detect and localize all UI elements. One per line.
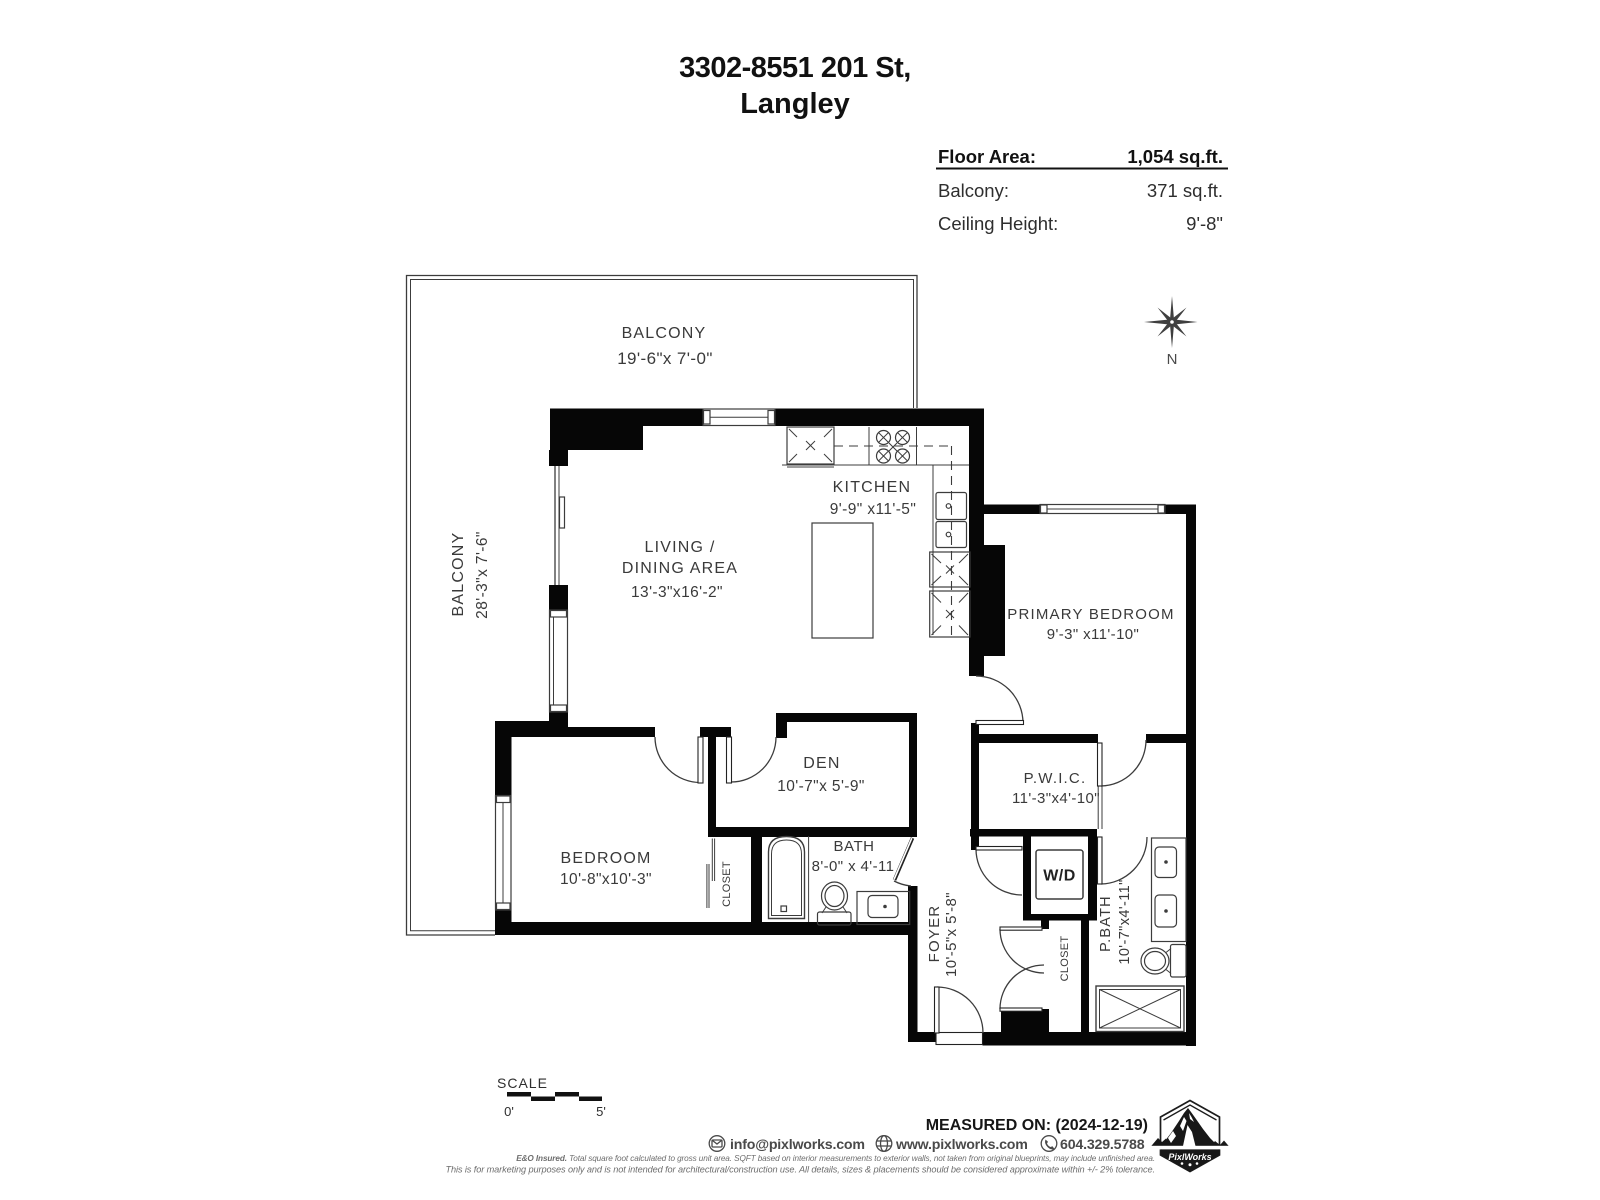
svg-text:CLOSET: CLOSET — [1059, 936, 1071, 982]
svg-text:BATH: BATH — [834, 838, 875, 855]
svg-text:FOYER: FOYER — [926, 905, 943, 963]
svg-text:10'-8"x10'-3": 10'-8"x10'-3" — [560, 871, 652, 888]
svg-text:10'-7"x 5'-9": 10'-7"x 5'-9" — [777, 778, 865, 795]
svg-text:N: N — [1167, 351, 1178, 368]
svg-text:11'-3"x4'-10": 11'-3"x4'-10" — [1012, 790, 1100, 807]
svg-text:Floor Area:: Floor Area: — [938, 146, 1036, 167]
svg-text:Langley: Langley — [740, 88, 850, 120]
svg-text:www.pixlworks.com: www.pixlworks.com — [895, 1137, 1028, 1153]
svg-text:13'-3"x16'-2": 13'-3"x16'-2" — [631, 584, 723, 601]
svg-text:This is for marketing purposes: This is for marketing purposes only and … — [445, 1165, 1155, 1175]
svg-text:Ceiling Height:: Ceiling Height: — [938, 213, 1058, 234]
svg-text:LIVING /: LIVING / — [645, 539, 716, 556]
svg-text:9'-9" x11'-5": 9'-9" x11'-5" — [830, 501, 916, 518]
svg-text:9'-8": 9'-8" — [1186, 213, 1223, 234]
svg-text:info@pixlworks.com: info@pixlworks.com — [730, 1137, 865, 1153]
svg-text:5': 5' — [596, 1104, 606, 1119]
svg-text:9'-3" x11'-10": 9'-3" x11'-10" — [1047, 626, 1140, 643]
svg-text:BALCONY: BALCONY — [450, 532, 467, 617]
svg-text:604.329.5788: 604.329.5788 — [1060, 1137, 1145, 1153]
svg-text:Balcony:: Balcony: — [938, 180, 1009, 201]
svg-text:8'-0" x 4'-11: 8'-0" x 4'-11 — [812, 858, 895, 875]
svg-text:PixlWorks: PixlWorks — [1168, 1152, 1211, 1162]
svg-text:P.BATH: P.BATH — [1098, 895, 1114, 952]
svg-text:P.W.I.C.: P.W.I.C. — [1024, 770, 1087, 787]
svg-text:DEN: DEN — [803, 755, 840, 772]
svg-text:28'-3"x 7'-6": 28'-3"x 7'-6" — [474, 531, 491, 619]
svg-text:BALCONY: BALCONY — [622, 325, 707, 342]
svg-text:PRIMARY BEDROOM: PRIMARY BEDROOM — [1007, 606, 1174, 623]
svg-text:BEDROOM: BEDROOM — [560, 850, 651, 867]
svg-text:19'-6"x 7'-0": 19'-6"x 7'-0" — [617, 349, 713, 368]
svg-text:3302-8551 201 St,: 3302-8551 201 St, — [679, 52, 911, 84]
svg-text:1,054 sq.ft.: 1,054 sq.ft. — [1127, 146, 1223, 167]
svg-text:MEASURED ON: (2024-12-19): MEASURED ON: (2024-12-19) — [926, 1117, 1148, 1134]
svg-text:SCALE: SCALE — [497, 1075, 548, 1091]
svg-text:W/D: W/D — [1043, 868, 1076, 885]
svg-text:CLOSET: CLOSET — [721, 861, 733, 907]
svg-text:DINING AREA: DINING AREA — [622, 560, 738, 577]
svg-text:KITCHEN: KITCHEN — [833, 479, 912, 496]
svg-text:E&O Insured. Total square foo: E&O Insured. Total square foot calculate… — [516, 1154, 1155, 1163]
svg-text:371 sq.ft.: 371 sq.ft. — [1147, 180, 1223, 201]
svg-text:10'-7"x4'-11": 10'-7"x4'-11" — [1117, 879, 1133, 964]
svg-text:0': 0' — [504, 1104, 514, 1119]
svg-text:10'-5"x 5'-8": 10'-5"x 5'-8" — [943, 892, 960, 977]
